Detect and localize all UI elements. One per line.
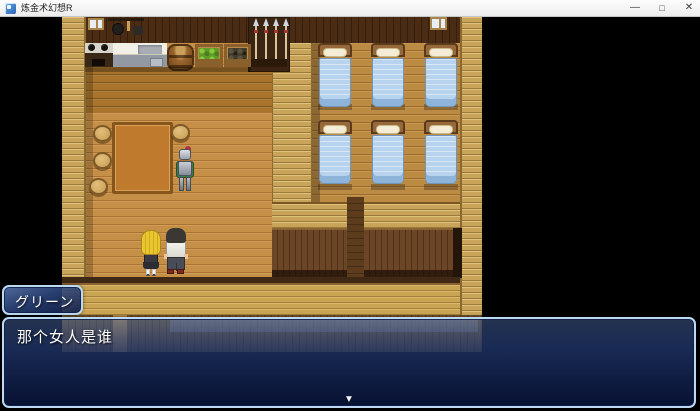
wall-left [62, 17, 86, 315]
close-icon[interactable]: ✕ [678, 0, 700, 17]
stool [89, 178, 108, 195]
message-text: 那个女人是谁 [17, 326, 113, 347]
bed-shadow [371, 184, 405, 190]
floor-kitchen [86, 67, 272, 112]
name-box: グリーン [2, 285, 83, 315]
bed [424, 43, 458, 107]
bed-shadow [424, 184, 458, 190]
ladle-icon [127, 21, 130, 31]
wall-bedroom-front [272, 202, 460, 228]
spear-rack [248, 17, 290, 72]
bed [371, 120, 405, 184]
window-title: 炼金术幻想R [21, 0, 73, 17]
speaker-name: グリーン [15, 292, 74, 312]
wall-panel-left [272, 228, 347, 278]
minimize-icon[interactable]: — [624, 0, 646, 17]
wall-window-bedroom [430, 17, 447, 30]
wall-corner-dark [453, 228, 462, 278]
title-bar[interactable]: 炼金术幻想R — □ ✕ [0, 0, 700, 17]
counter-drawer [150, 58, 163, 67]
stove [85, 43, 113, 53]
character-knight [176, 148, 194, 195]
crate-vegetables [224, 44, 251, 67]
stool [93, 125, 112, 142]
frying-pan-icon [112, 23, 124, 35]
character-girl [140, 230, 162, 276]
crate-apples [195, 44, 223, 67]
message-window[interactable]: 那个女人是谁 ▼ [2, 317, 696, 408]
south-wall [62, 283, 460, 315]
bed [424, 120, 458, 184]
app-window: 炼金术幻想R — □ ✕ [0, 0, 700, 411]
wall-panel-right [364, 228, 453, 278]
counter-shadow [85, 67, 251, 72]
wall-window-kitchen [88, 18, 104, 30]
continue-arrow-icon: ▼ [344, 395, 354, 405]
bed-shadow [318, 184, 352, 190]
bed [371, 43, 405, 107]
sink [138, 45, 162, 54]
character-man [164, 228, 188, 275]
maximize-icon[interactable]: □ [651, 0, 673, 17]
stool [171, 124, 190, 141]
doorway [347, 197, 364, 278]
pot-rack-bar [108, 18, 144, 21]
bed [318, 120, 352, 184]
wall-right [460, 17, 482, 315]
pot-icon [133, 26, 143, 35]
stool [93, 152, 112, 169]
bed [318, 43, 352, 107]
app-icon[interactable] [5, 3, 16, 14]
game-viewport[interactable]: グリーン 那个女人是谁 ▼ [0, 17, 700, 411]
dining-table [112, 122, 173, 194]
stove-opening [92, 59, 105, 66]
